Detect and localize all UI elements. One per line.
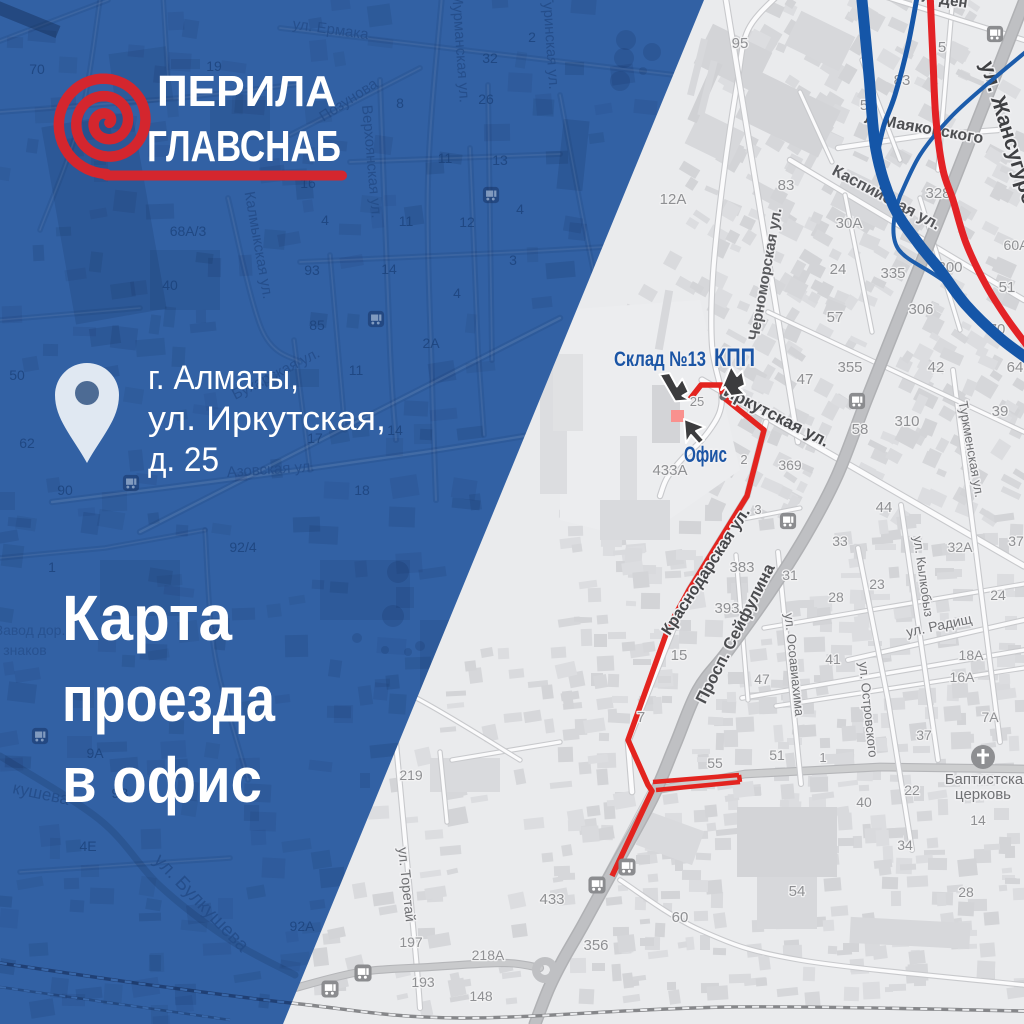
svg-text:24: 24 <box>990 587 1006 603</box>
svg-text:92А: 92А <box>290 918 316 934</box>
svg-text:37: 37 <box>1008 533 1024 549</box>
svg-text:Завод дор.: Завод дор. <box>0 622 65 638</box>
svg-text:14: 14 <box>970 812 986 828</box>
svg-text:1: 1 <box>819 750 826 765</box>
svg-text:КПП: КПП <box>714 344 755 372</box>
svg-text:11: 11 <box>438 150 453 166</box>
svg-text:22: 22 <box>904 782 920 798</box>
svg-text:335: 335 <box>880 265 905 282</box>
svg-text:16А: 16А <box>950 669 976 685</box>
svg-text:193: 193 <box>411 974 435 990</box>
svg-text:51: 51 <box>999 279 1016 296</box>
svg-text:50: 50 <box>9 367 25 383</box>
svg-text:355: 355 <box>837 359 862 376</box>
svg-text:40: 40 <box>162 277 178 293</box>
svg-text:32: 32 <box>482 50 498 66</box>
svg-text:ПЕРИЛА: ПЕРИЛА <box>157 67 336 116</box>
svg-text:33: 33 <box>832 533 848 549</box>
svg-text:51: 51 <box>769 747 785 763</box>
svg-text:знаков: знаков <box>3 642 46 658</box>
svg-text:14: 14 <box>381 261 397 277</box>
svg-text:ГЛАВСНАБ: ГЛАВСНАБ <box>147 122 341 171</box>
svg-text:95: 95 <box>732 35 749 52</box>
svg-text:15: 15 <box>671 647 688 664</box>
svg-text:23: 23 <box>869 576 885 592</box>
svg-text:433А: 433А <box>652 462 687 479</box>
svg-text:41: 41 <box>825 651 841 667</box>
svg-text:83: 83 <box>778 177 795 194</box>
svg-text:433: 433 <box>539 891 564 908</box>
svg-text:68А/3: 68А/3 <box>170 223 207 239</box>
svg-text:30А: 30А <box>836 215 863 232</box>
svg-text:4: 4 <box>453 285 461 301</box>
svg-text:62: 62 <box>19 435 35 451</box>
svg-text:37: 37 <box>916 727 932 743</box>
svg-text:2: 2 <box>528 29 536 45</box>
svg-text:31: 31 <box>782 567 798 583</box>
svg-text:32А: 32А <box>948 539 974 555</box>
svg-text:8: 8 <box>396 95 404 111</box>
svg-text:4: 4 <box>321 212 329 228</box>
svg-text:проезда: проезда <box>62 663 275 735</box>
svg-text:85: 85 <box>309 317 325 333</box>
svg-text:25: 25 <box>690 394 704 409</box>
svg-text:18: 18 <box>354 482 370 498</box>
svg-text:12А: 12А <box>660 191 687 208</box>
svg-text:42: 42 <box>928 359 945 376</box>
svg-text:93: 93 <box>304 262 320 278</box>
svg-text:4Е: 4Е <box>79 838 96 854</box>
svg-text:60: 60 <box>672 909 689 926</box>
svg-text:1: 1 <box>48 559 56 575</box>
svg-text:11: 11 <box>349 362 364 378</box>
svg-text:219: 219 <box>399 767 423 783</box>
svg-text:2А: 2А <box>422 335 440 351</box>
svg-text:356: 356 <box>583 937 608 954</box>
svg-text:54: 54 <box>789 883 806 900</box>
svg-text:13: 13 <box>492 152 508 168</box>
svg-text:2: 2 <box>740 452 747 467</box>
svg-text:3: 3 <box>509 252 517 268</box>
svg-text:церковь: церковь <box>955 786 1011 803</box>
svg-text:12: 12 <box>459 214 475 230</box>
svg-text:310: 310 <box>894 413 919 430</box>
svg-text:Карта: Карта <box>62 582 232 654</box>
svg-text:4: 4 <box>516 201 524 217</box>
svg-text:393: 393 <box>714 600 739 617</box>
svg-text:5: 5 <box>938 39 946 56</box>
svg-text:55: 55 <box>707 755 723 771</box>
svg-text:47: 47 <box>797 371 814 388</box>
svg-text:28: 28 <box>958 884 974 900</box>
svg-text:39: 39 <box>992 403 1009 420</box>
svg-text:Офис: Офис <box>684 442 727 467</box>
svg-text:57: 57 <box>827 309 844 326</box>
svg-text:92/4: 92/4 <box>229 539 256 555</box>
svg-text:148: 148 <box>469 988 493 1004</box>
svg-text:3: 3 <box>754 502 761 517</box>
svg-text:60А: 60А <box>1004 237 1024 253</box>
svg-text:28: 28 <box>828 589 844 605</box>
svg-text:70: 70 <box>29 61 45 77</box>
svg-text:24: 24 <box>830 261 847 278</box>
svg-text:11: 11 <box>399 213 414 229</box>
svg-text:ул. Иркутская,: ул. Иркутская, <box>148 400 386 438</box>
svg-text:47: 47 <box>754 671 770 687</box>
svg-text:34: 34 <box>897 837 913 853</box>
svg-text:7А: 7А <box>981 709 999 725</box>
svg-text:18А: 18А <box>959 647 985 663</box>
svg-text:197: 197 <box>399 934 423 950</box>
svg-text:383: 383 <box>729 559 754 576</box>
svg-text:218А: 218А <box>472 947 505 963</box>
svg-text:64: 64 <box>1007 359 1024 376</box>
svg-text:369: 369 <box>778 457 802 473</box>
svg-text:306: 306 <box>908 301 933 318</box>
svg-text:Склад №13: Склад №13 <box>614 348 706 371</box>
svg-text:7: 7 <box>637 709 645 726</box>
svg-text:40: 40 <box>856 794 872 810</box>
svg-text:в офис: в офис <box>62 744 262 816</box>
svg-text:г. Алматы,: г. Алматы, <box>148 359 299 397</box>
svg-text:д. 25: д. 25 <box>148 441 219 479</box>
svg-text:44: 44 <box>876 499 893 516</box>
svg-text:58: 58 <box>852 421 869 438</box>
svg-text:26: 26 <box>478 91 494 107</box>
svg-text:90: 90 <box>57 482 73 498</box>
svg-text:14: 14 <box>387 422 403 438</box>
